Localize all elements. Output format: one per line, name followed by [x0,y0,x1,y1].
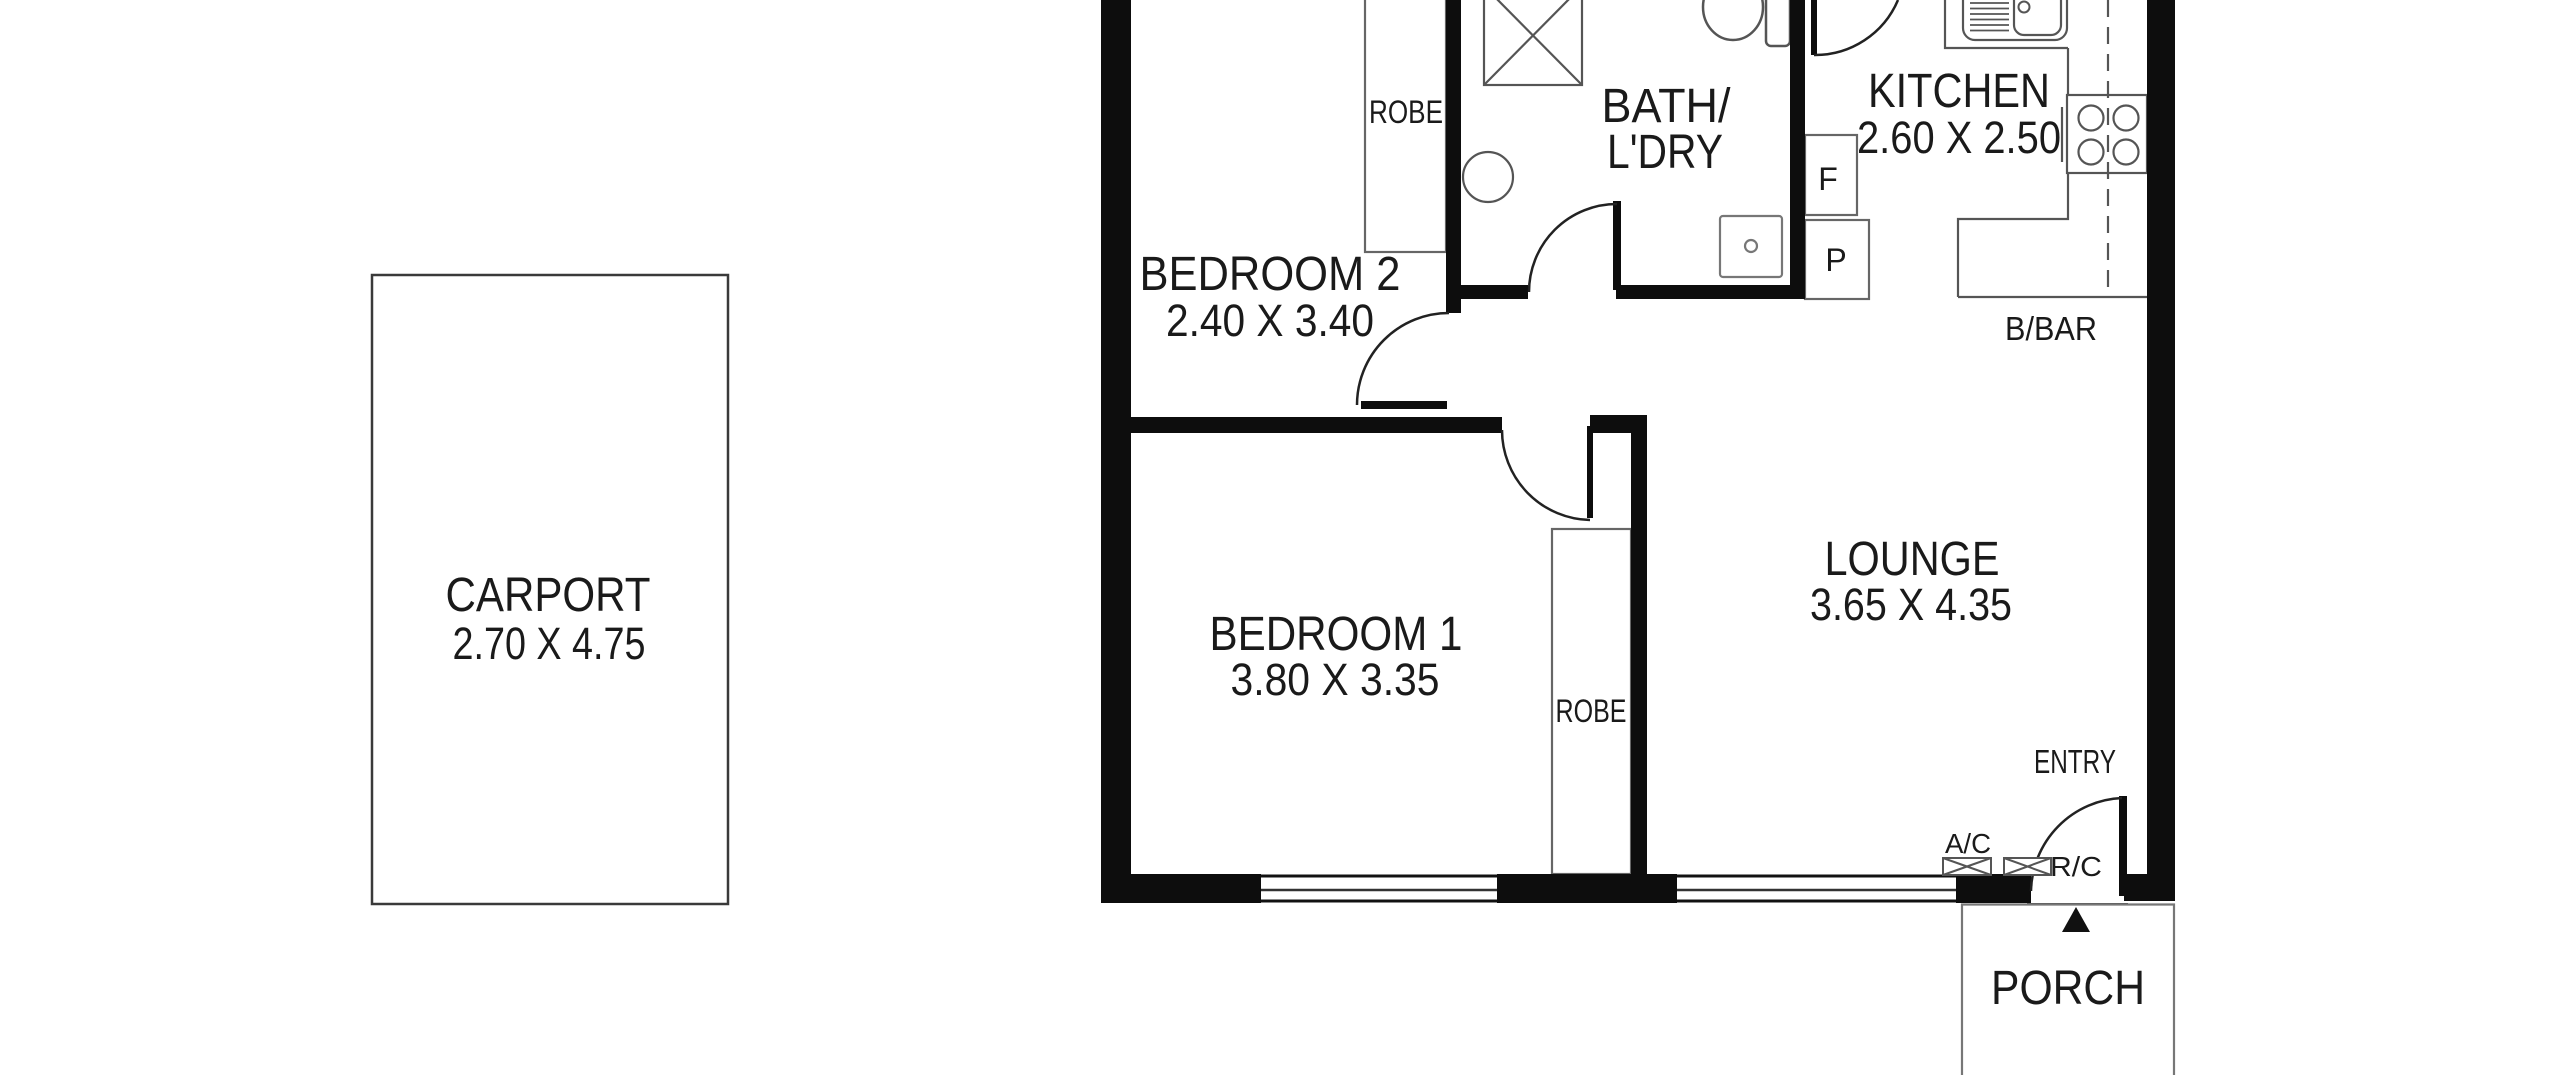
svg-text:ROBE: ROBE [1556,693,1627,729]
svg-text:ENTRY: ENTRY [2034,743,2116,780]
svg-text:PORCH: PORCH [1991,962,2145,1015]
svg-text:2.70 X 4.75: 2.70 X 4.75 [453,618,646,669]
svg-text:BEDROOM 2: BEDROOM 2 [1140,248,1401,301]
svg-text:3.65 X 4.35: 3.65 X 4.35 [1810,579,2012,630]
svg-text:2.40 X 3.40: 2.40 X 3.40 [1166,295,1374,346]
svg-text:P: P [1825,242,1846,278]
svg-text:B/BAR: B/BAR [2005,310,2097,347]
svg-text:CARPORT: CARPORT [446,569,651,622]
svg-text:A/C: A/C [1945,828,1991,859]
svg-text:R/C: R/C [2050,851,2102,882]
svg-text:KITCHEN: KITCHEN [1868,65,2050,118]
svg-text:L'DRY: L'DRY [1607,126,1723,179]
svg-text:F: F [1818,161,1838,197]
svg-text:ROBE: ROBE [1369,94,1443,130]
svg-text:3.80 X 3.35: 3.80 X 3.35 [1231,654,1440,705]
svg-text:2.60 X 2.50: 2.60 X 2.50 [1857,112,2061,163]
